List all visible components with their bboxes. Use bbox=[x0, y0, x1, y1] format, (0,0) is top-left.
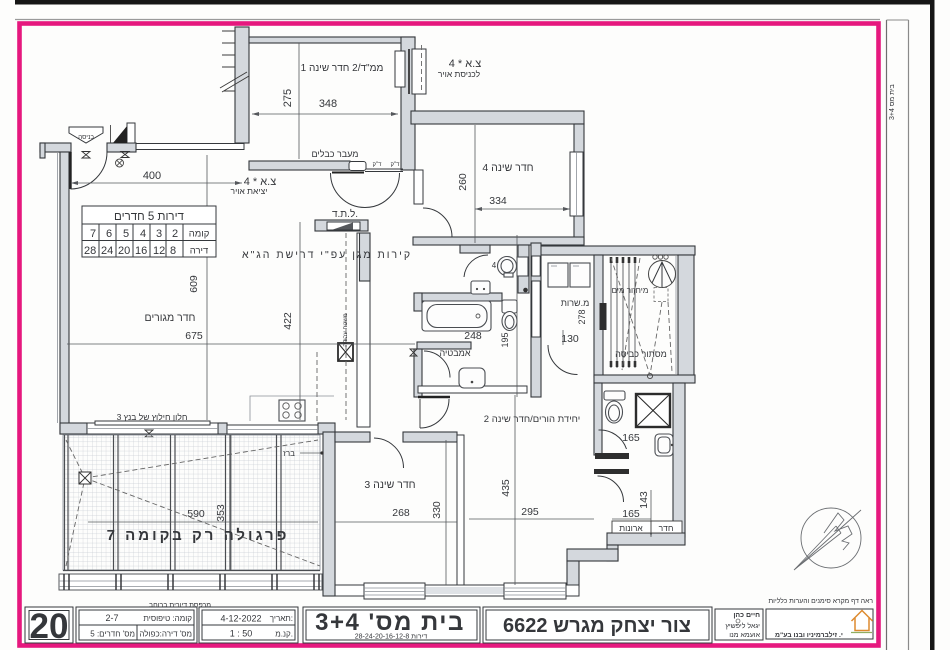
svg-text:דירות 5 חדרים: דירות 5 חדרים bbox=[114, 211, 185, 223]
svg-text:יציאת אויר: יציאת אויר bbox=[231, 186, 268, 196]
svg-text:דירות 28-24-20-16-12-8: דירות 28-24-20-16-12-8 bbox=[355, 634, 428, 641]
svg-text:חדר: חדר bbox=[659, 523, 674, 533]
svg-text:מעבר כבלים: מעבר כבלים bbox=[312, 149, 359, 159]
svg-text:ד"ק: ד"ק bbox=[373, 162, 383, 168]
svg-text:6: 6 bbox=[106, 228, 112, 240]
svg-text:לכניסת אויר: לכניסת אויר bbox=[438, 69, 481, 79]
svg-text:435: 435 bbox=[500, 479, 512, 497]
svg-text:בית מס 3+4: בית מס 3+4 bbox=[889, 84, 896, 120]
svg-text:16: 16 bbox=[135, 245, 147, 257]
svg-text:268: 268 bbox=[392, 507, 410, 519]
svg-text:ממ"ד/2 חדר שינה 1: ממ"ד/2 חדר שינה 1 bbox=[301, 63, 384, 74]
svg-text:ראה דף מקרא סימנים והערות כללי: ראה דף מקרא סימנים והערות כלליות bbox=[768, 597, 873, 605]
svg-text:143: 143 bbox=[638, 491, 650, 509]
svg-text:דירה: דירה bbox=[190, 246, 209, 257]
svg-text:ברז: ברז bbox=[283, 449, 295, 458]
svg-text:24: 24 bbox=[101, 245, 113, 257]
svg-text:165: 165 bbox=[622, 508, 640, 520]
svg-text:2: 2 bbox=[172, 228, 178, 240]
svg-text:בית מס' 3+4: בית מס' 3+4 bbox=[315, 609, 465, 636]
svg-text:מיחזור מים: מיחזור מים bbox=[612, 286, 649, 295]
svg-text:חלון חילוץ של בנץ 3: חלון חילוץ של בנץ 3 bbox=[117, 412, 188, 422]
svg-text:קומה: טיפוסית: קומה: טיפוסית bbox=[143, 614, 192, 623]
svg-text:195: 195 bbox=[500, 332, 510, 347]
svg-text:4: 4 bbox=[140, 228, 146, 240]
svg-text:חדר מגורים: חדר מגורים bbox=[145, 312, 196, 324]
svg-text:7: 7 bbox=[90, 228, 96, 240]
svg-text:מסתור כביסה: מסתור כביסה bbox=[615, 349, 667, 359]
svg-text:מ.שרות: מ.שרות bbox=[561, 298, 590, 308]
svg-text:י. זילברמיניו ובנו בע"מ: י. זילברמיניו ובנו בע"מ bbox=[775, 631, 843, 639]
svg-text:353: 353 bbox=[215, 504, 227, 522]
svg-text:צור יצחק מגרש 6622: צור יצחק מגרש 6622 bbox=[503, 615, 691, 637]
svg-text:ארונות: ארונות bbox=[619, 523, 643, 533]
svg-text:609: 609 bbox=[188, 275, 200, 293]
svg-text:1 : 50: 1 : 50 bbox=[230, 629, 253, 639]
svg-text:675: 675 bbox=[185, 330, 203, 342]
svg-text:אמבטיה: אמבטיה bbox=[440, 348, 471, 358]
svg-text:590: 590 bbox=[187, 508, 205, 520]
svg-text:משטח עבודה: משטח עבודה bbox=[343, 313, 349, 347]
svg-text:אועמא מנו: אועמא מנו bbox=[729, 632, 760, 639]
svg-text:ל.ת.ד.: ל.ת.ד. bbox=[332, 208, 358, 220]
svg-text:פרגולה רק בקומה 7: פרגולה רק בקומה 7 bbox=[107, 527, 290, 544]
svg-text:422: 422 bbox=[282, 312, 294, 330]
svg-text:תאריך:: תאריך: bbox=[270, 614, 293, 623]
svg-text:2-7: 2-7 bbox=[105, 613, 118, 623]
svg-text:8: 8 bbox=[170, 245, 176, 257]
svg-text:20: 20 bbox=[118, 245, 130, 257]
svg-text:חיים כהן: חיים כהן bbox=[733, 612, 760, 619]
svg-text:260: 260 bbox=[457, 173, 469, 191]
svg-text:4-12-2022: 4-12-2022 bbox=[220, 614, 261, 624]
svg-text:278: 278 bbox=[577, 309, 587, 324]
svg-text:חדר שינה 3: חדר שינה 3 bbox=[364, 479, 415, 491]
svg-text:165: 165 bbox=[622, 432, 640, 444]
svg-text:334: 334 bbox=[489, 195, 507, 207]
svg-text:330: 330 bbox=[431, 501, 443, 519]
svg-text:5: 5 bbox=[123, 228, 129, 240]
svg-text:4: 4 bbox=[492, 261, 497, 270]
svg-text:130: 130 bbox=[561, 333, 579, 345]
svg-text:275: 275 bbox=[282, 89, 294, 107]
svg-text:יחידת הורים/חדר שינה 2: יחידת הורים/חדר שינה 2 bbox=[484, 414, 580, 425]
svg-text:מס' חדרים: 5: מס' חדרים: 5 bbox=[90, 630, 135, 639]
svg-text:28: 28 bbox=[84, 245, 96, 257]
svg-text:400: 400 bbox=[143, 170, 161, 182]
svg-text:348: 348 bbox=[319, 98, 337, 110]
svg-text:כניסה: כניסה bbox=[78, 134, 94, 141]
svg-text:יגאל ליפשיץ: יגאל ליפשיץ bbox=[725, 622, 760, 630]
svg-text:קומה: קומה bbox=[189, 229, 210, 240]
svg-text:20: 20 bbox=[30, 607, 69, 646]
svg-text:248: 248 bbox=[464, 330, 482, 342]
svg-text:ד"ק: ד"ק bbox=[391, 162, 401, 168]
svg-text:12: 12 bbox=[153, 245, 165, 257]
svg-text:מס' דירה:כפולה: מס' דירה:כפולה bbox=[139, 630, 192, 639]
svg-text:295: 295 bbox=[521, 506, 539, 518]
svg-text:חדר שינה 4: חדר שינה 4 bbox=[482, 162, 533, 174]
svg-text:קנ.מ.: קנ.מ. bbox=[275, 630, 293, 639]
svg-text:3: 3 bbox=[156, 228, 162, 240]
svg-text:קירות מגן עפ"י דרישת הג"א: קירות מגן עפ"י דרישת הג"א bbox=[242, 249, 412, 261]
